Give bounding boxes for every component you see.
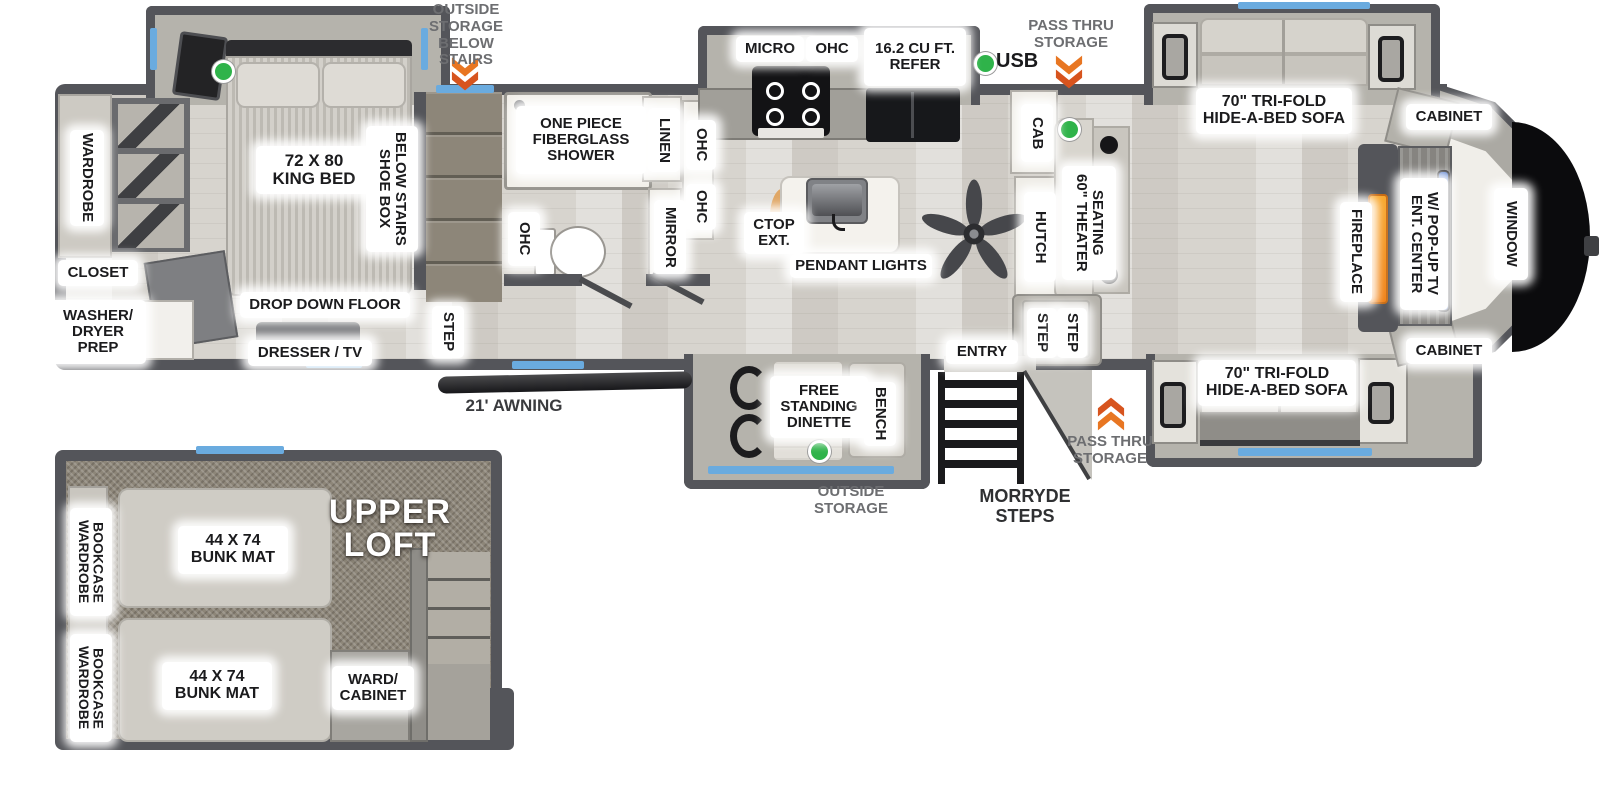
hitch-pin <box>1584 236 1599 256</box>
outside-storage-below-stairs-note: OUTSIDE STORAGE BELOW STAIRS <box>414 2 518 69</box>
rv-floorplan: OUTSIDE STORAGE BELOW STAIRS USB PASS TH… <box>0 0 1600 806</box>
closet-shelf <box>118 154 184 198</box>
linen-label: LINEN <box>648 108 680 172</box>
micro-label: MICRO <box>736 36 804 62</box>
awning-label: 21' AWNING <box>456 396 572 415</box>
bath-wall <box>504 274 582 286</box>
pass-thru-arrow-down-icon <box>1052 54 1086 90</box>
cabinet-bottom-label: CABINET <box>1406 338 1492 364</box>
morryde-steps <box>938 372 1024 484</box>
wardrobe-bookcase-2-label: WARDROBE BOOKCASE <box>70 634 112 742</box>
outside-storage-bottom-note: OUTSIDE STORAGE <box>806 484 896 518</box>
pass-thru-storage-top-note: PASS THRU STORAGE <box>1024 18 1118 52</box>
mirror-label: MIRROR <box>654 200 686 274</box>
wardrobe-bookcase-1-label: WARDROBE BOOKCASE <box>70 508 112 616</box>
ohc-upper-label: OHC <box>686 120 716 170</box>
step-entry-1-label: STEP <box>1027 308 1057 358</box>
loft-window-accent <box>196 446 284 454</box>
usb-label: USB <box>996 50 1052 72</box>
sofa-slide-window-accent <box>1238 2 1370 9</box>
entry-label: ENTRY <box>946 340 1018 364</box>
burner-icon <box>802 82 820 100</box>
ward-cabinet-label: WARD/ CABINET <box>332 666 414 710</box>
sofa-bottom-seat <box>1200 412 1360 446</box>
ent-center-label: ENT. CENTER W/ POP-UP TV <box>1400 178 1448 310</box>
shower-label: ONE PIECE FIBERGLASS SHOWER <box>516 106 646 174</box>
usb-indicator-icon <box>974 52 997 75</box>
theater-seating-label: 60" THEATER SEATING <box>1062 166 1116 280</box>
pendant-lights-label: PENDANT LIGHTS <box>790 254 932 278</box>
window-frame <box>1368 382 1394 424</box>
bunk-mat-2-label: 44 X 74 BUNK MAT <box>162 662 272 710</box>
dinette-chair-icon <box>730 366 768 410</box>
loft-step-notch <box>488 688 514 750</box>
refer-label: 16.2 CU FT. REFER <box>864 28 966 86</box>
hutch-label: HUTCH <box>1024 192 1056 282</box>
fireplace-label: FIREPLACE <box>1340 202 1372 302</box>
burner-icon <box>766 108 784 126</box>
loft-divider-wall <box>410 548 428 742</box>
shoe-box-label: SHOE BOX BELOW STAIRS <box>366 126 418 252</box>
usb-indicator-living-icon <box>1058 118 1081 141</box>
sofa-slide-window-accent <box>1238 448 1372 456</box>
burner-icon <box>766 82 784 100</box>
bunk-mat-1-label: 44 X 74 BUNK MAT <box>178 526 288 574</box>
window-accent <box>512 361 584 369</box>
ohc-left-label: OHC <box>508 212 540 266</box>
step-label-bedroom: STEP <box>432 306 464 358</box>
ctop-ext-label: CTOP EXT. <box>744 212 804 254</box>
awning-bar <box>438 371 692 393</box>
usb-indicator-bedroom-icon <box>212 60 235 83</box>
step-entry-2-label: STEP <box>1057 308 1087 358</box>
sofa-cushion-split <box>1282 20 1285 84</box>
usb-indicator-dinette-icon <box>808 440 831 463</box>
sofa-top-label: 70" TRI-FOLD HIDE-A-BED SOFA <box>1196 88 1352 134</box>
ceiling-fan-icon <box>916 176 1032 292</box>
loft-stairs <box>428 552 490 664</box>
bedroom-window-left <box>150 28 157 70</box>
pillow <box>322 62 406 108</box>
refrigerator-door-split <box>911 92 914 138</box>
dresser-tv-label: DRESSER / TV <box>248 340 372 366</box>
loft-stairs-landing <box>428 664 490 740</box>
pass-thru-storage-bottom-note: PASS THRU STORAGE <box>1058 434 1162 468</box>
bench-label: BENCH <box>864 382 896 446</box>
cupholder-icon <box>1100 136 1118 154</box>
wardrobe-label: WARDROBE <box>70 130 104 226</box>
closet-shelf <box>118 104 184 148</box>
morryde-steps-note: MORRYDE STEPS <box>945 486 1105 526</box>
upper-loft-title: UPPER LOFT <box>328 496 452 563</box>
cabinet-top-label: CABINET <box>1406 104 1492 130</box>
drop-down-floor-label: DROP DOWN FLOOR <box>240 292 410 318</box>
burner-icon <box>802 108 820 126</box>
cooktop <box>752 66 830 136</box>
ohc-kitchen-label: OHC <box>806 36 858 62</box>
washer-dryer-prep-label: WASHER/ DRYER PREP <box>50 300 146 364</box>
main-stairs <box>426 92 502 302</box>
window-label: WINDOW <box>1494 188 1528 280</box>
oven-front <box>758 128 824 138</box>
king-bed-label: 72 X 80 KING BED <box>256 146 372 194</box>
ohc-lower-label: OHC <box>686 184 716 230</box>
pass-thru-arrow-up-icon <box>1094 396 1128 432</box>
free-standing-dinette-label: FREE STANDING DINETTE <box>770 376 868 438</box>
closet-label: CLOSET <box>58 260 138 286</box>
window-frame <box>1160 382 1186 428</box>
window-frame <box>1162 34 1188 80</box>
pillow <box>236 62 320 108</box>
toilet-bowl <box>550 226 606 278</box>
dinette-chair-icon <box>730 414 768 458</box>
closet-shelf <box>118 204 184 248</box>
window-frame <box>1378 36 1404 82</box>
island-sink-basin <box>812 184 862 216</box>
sofa-bottom-label: 70" TRI-FOLD HIDE-A-BED SOFA <box>1198 360 1356 406</box>
cab-label: CAB <box>1021 104 1053 162</box>
dinette-window-accent <box>708 466 894 474</box>
